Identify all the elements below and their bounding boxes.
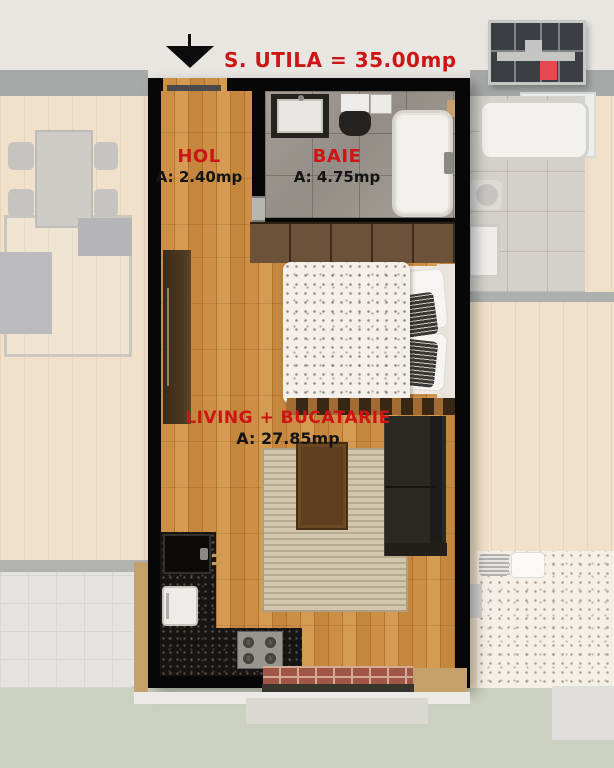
terrace-patio — [246, 698, 428, 724]
bathroom-door — [252, 196, 265, 222]
neighbor-dining-table — [35, 130, 93, 228]
neighbor-dining-chair — [8, 142, 34, 170]
neighbor-bed-pillow — [479, 554, 509, 576]
down-arrow-icon — [166, 46, 214, 68]
neighbor-bathroom-sink — [468, 224, 500, 278]
neighbor-sofa — [0, 252, 52, 334]
neighbor-dining-chair — [94, 142, 118, 170]
cabinet-handle — [212, 554, 222, 557]
bathtub-faucet — [444, 152, 453, 174]
stove-burner — [265, 653, 276, 664]
stove-burner — [243, 653, 254, 664]
sink-faucet — [298, 95, 304, 101]
room-label-living: LIVING + BUCATARIE A: 27.85mp — [176, 408, 400, 448]
room-area: A: 2.40mp — [149, 168, 249, 186]
exterior-trim — [134, 562, 148, 692]
neighbor-right-terrace — [552, 686, 614, 740]
page-title: S. UTILA = 35.00mp — [224, 48, 457, 72]
washing-machine — [370, 94, 392, 114]
sofa-armrest — [385, 543, 447, 556]
corridor-strip-left — [0, 70, 148, 96]
stove-burner — [243, 637, 254, 648]
room-name: BAIE — [287, 146, 387, 168]
cabinet-handle — [167, 288, 169, 386]
cabinet-handle — [212, 562, 222, 565]
neighbor-dining-chair — [94, 189, 118, 217]
room-name: LIVING + BUCATARIE — [176, 408, 400, 429]
neighbor-left-terrace — [0, 572, 132, 688]
stove-burner — [265, 637, 276, 648]
bed-duvet — [283, 262, 410, 404]
room-label-hol: HOL A: 2.40mp — [149, 146, 249, 186]
neighbor-bathtub — [479, 100, 589, 160]
neighbor-right-wall — [467, 292, 614, 302]
floor-plan: S. UTILA = 35.00mp — [0, 0, 614, 768]
logo-red-unit — [540, 61, 557, 80]
stove — [237, 631, 283, 669]
neighbor-left-wall — [0, 560, 148, 572]
sofa-seat-divider — [385, 486, 435, 488]
neighbor-sideboard — [78, 218, 132, 256]
developer-logo — [488, 20, 586, 85]
neighbor-bed-pillow — [511, 552, 545, 578]
logo-bar — [497, 52, 575, 61]
bathroom-sink — [277, 99, 323, 133]
room-area: A: 27.85mp — [176, 429, 400, 449]
exterior-trim — [413, 668, 467, 692]
fridge — [162, 586, 198, 626]
toilet-tank — [341, 94, 369, 112]
coffee-table — [296, 442, 348, 530]
kitchen-faucet — [200, 548, 208, 560]
room-label-baie: BAIE A: 4.75mp — [287, 146, 387, 186]
toilet — [339, 111, 371, 136]
brick-parapet — [263, 666, 413, 686]
fridge-handle — [166, 593, 169, 619]
neighbor-dining-chair — [8, 189, 34, 217]
neighbor-toilet-bowl — [476, 184, 498, 206]
wardrobe — [250, 222, 455, 263]
room-name: HOL — [149, 146, 249, 168]
room-area: A: 4.75mp — [287, 168, 387, 186]
